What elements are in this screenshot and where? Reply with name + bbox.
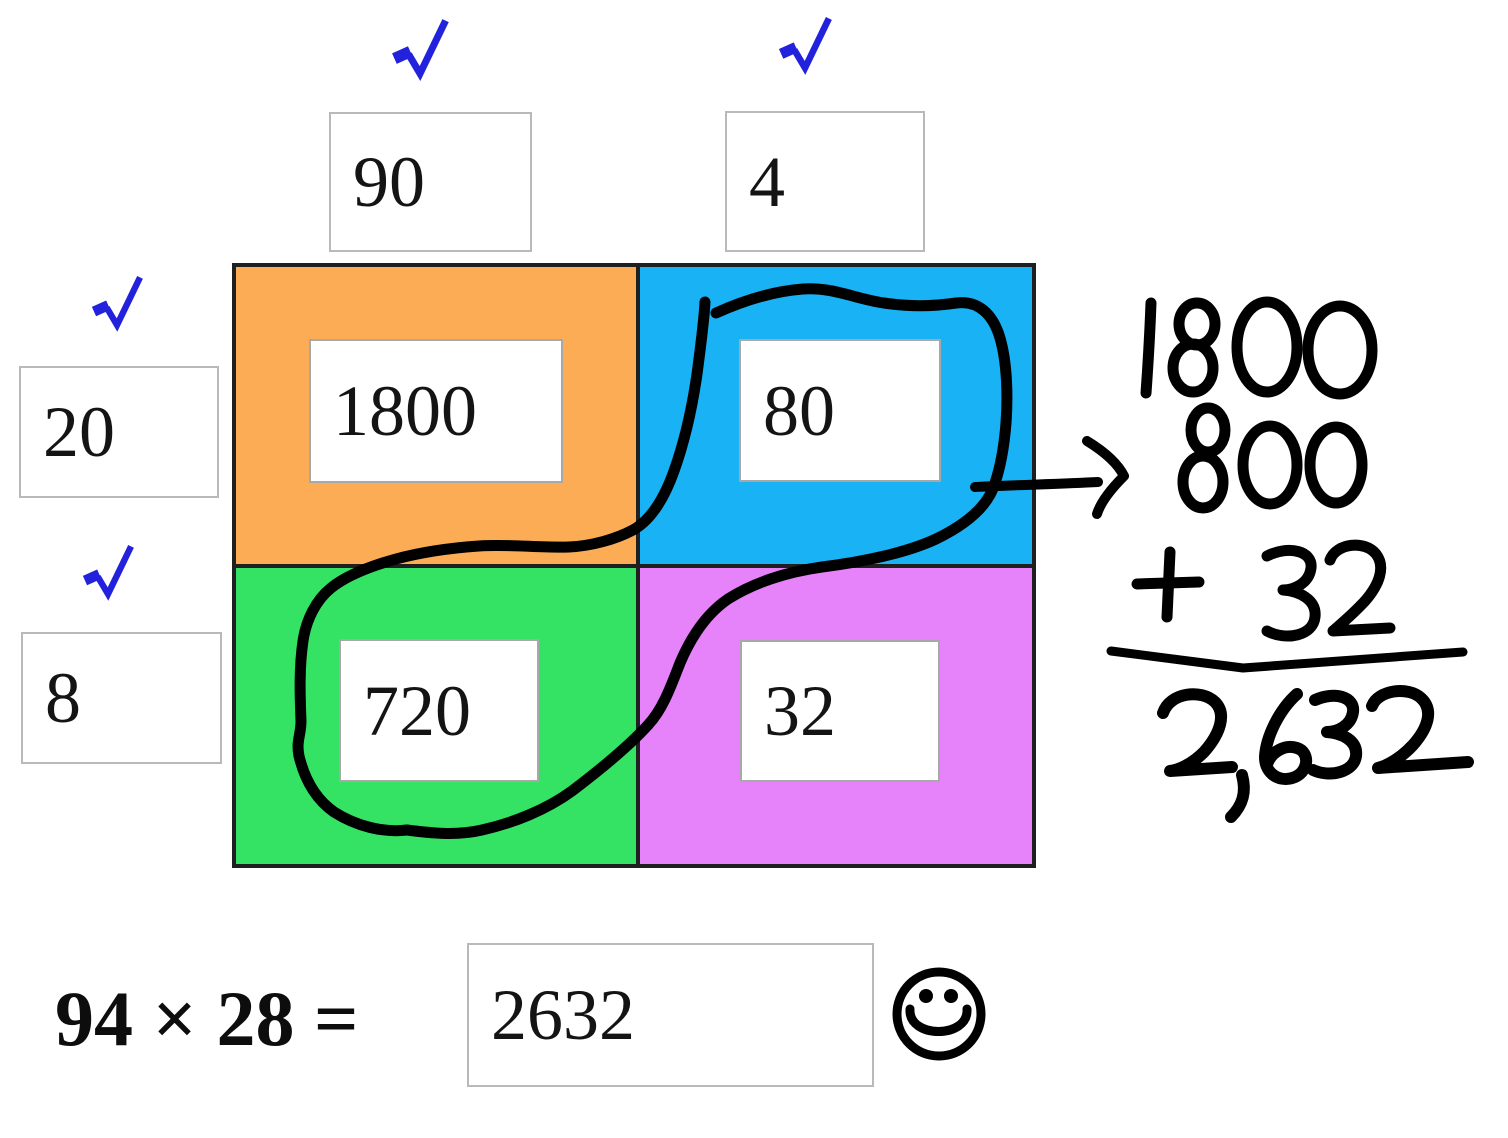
factor-value-90: 90	[331, 146, 425, 218]
product-input-1800[interactable]: 1800	[309, 339, 563, 483]
product-input-720[interactable]: 720	[339, 639, 539, 782]
answer-value: 2632	[469, 979, 635, 1051]
answer-input[interactable]: 2632	[467, 943, 874, 1087]
product-value-80: 80	[741, 375, 835, 447]
checkmark-icon-factor-90	[390, 13, 450, 83]
product-value-720: 720	[341, 675, 471, 747]
factor-value-8: 8	[23, 662, 81, 734]
factor-input-left-tens[interactable]: 20	[19, 366, 219, 498]
checkmark-icon-factor-20	[90, 269, 144, 335]
factor-input-top-ones[interactable]: 4	[725, 111, 925, 252]
product-value-32: 32	[742, 675, 836, 747]
factor-input-left-ones[interactable]: 8	[21, 632, 222, 764]
handwritten-800	[1183, 408, 1362, 508]
checkmark-icon-factor-8	[81, 538, 135, 604]
area-model-worksheet: 90 4 20 8 1800 80 720 32	[0, 0, 1508, 1138]
smiley-face-icon	[889, 964, 989, 1064]
product-value-1800: 1800	[311, 375, 477, 447]
equation-label: 94 × 28 =	[55, 980, 358, 1058]
handwritten-1800	[1146, 302, 1372, 394]
factor-value-4: 4	[727, 146, 785, 218]
checkmark-icon-factor-4	[777, 10, 833, 78]
handwritten-plus-32	[1137, 545, 1390, 636]
factor-value-20: 20	[21, 396, 115, 468]
handwritten-2632	[1163, 691, 1468, 817]
product-input-80[interactable]: 80	[739, 339, 941, 482]
handwritten-sum-line	[1111, 651, 1463, 668]
factor-input-top-tens[interactable]: 90	[329, 112, 532, 252]
product-input-32[interactable]: 32	[740, 640, 940, 782]
